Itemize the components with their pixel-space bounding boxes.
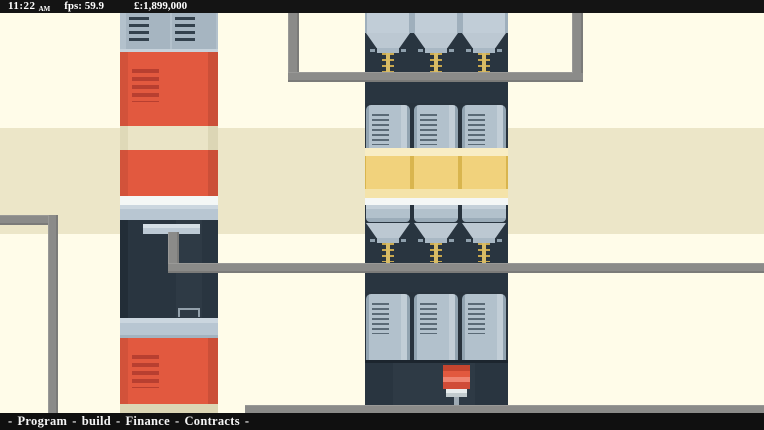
menu-separator: - bbox=[175, 414, 179, 429]
tank-steel-ring bbox=[120, 205, 218, 220]
injector-nozzle bbox=[414, 33, 458, 73]
fps-counter: fps: 59.9 bbox=[64, 0, 104, 13]
drill-collar bbox=[446, 389, 467, 397]
tank-white-ring bbox=[120, 196, 218, 205]
menu-item-finance[interactable]: Finance bbox=[126, 414, 170, 429]
vent-slats-icon bbox=[468, 303, 485, 334]
menu-item-program[interactable]: Program bbox=[17, 414, 67, 429]
tank-vent-slats-icon bbox=[132, 355, 159, 388]
housing-segment bbox=[415, 13, 457, 33]
menu-separator: - bbox=[8, 414, 12, 429]
red-tank-middle bbox=[120, 150, 218, 196]
injector-chamber-upper bbox=[365, 33, 508, 103]
injector-nozzle bbox=[462, 223, 506, 263]
injector-chamber-lower bbox=[365, 222, 508, 292]
injector-nozzle bbox=[366, 223, 410, 263]
tank-white-ring bbox=[365, 198, 508, 205]
cylinder bbox=[414, 105, 458, 148]
cylinder bbox=[462, 105, 506, 148]
vent-slats-icon bbox=[129, 17, 149, 44]
nozzle-head-icon bbox=[462, 223, 506, 238]
cylinder bbox=[462, 294, 506, 360]
nozzle-head-icon bbox=[366, 33, 410, 48]
machine-column-right[interactable] bbox=[365, 0, 508, 430]
fill-band-lowlight bbox=[365, 189, 508, 198]
chamber-shadow-edge bbox=[120, 220, 128, 318]
fill-band-highlight bbox=[365, 148, 508, 156]
drill-bit-icon bbox=[430, 53, 442, 72]
tank-steel-ring bbox=[120, 318, 218, 338]
yellow-fill-band bbox=[365, 148, 508, 198]
menu-separator: - bbox=[245, 414, 249, 429]
game-viewport: 11:22 AM fps: 59.9 £:1,899,000 - Program… bbox=[0, 0, 764, 430]
injector-nozzle bbox=[366, 33, 410, 73]
clock-ampm: AM bbox=[39, 3, 51, 16]
nozzle-head-icon bbox=[366, 223, 410, 238]
nozzle-head-icon bbox=[462, 33, 506, 48]
cylinder bbox=[366, 294, 410, 360]
cylinder bbox=[414, 294, 458, 360]
housing-segment bbox=[463, 13, 505, 33]
tank-base bbox=[120, 404, 218, 413]
injector-top-housing bbox=[365, 13, 508, 33]
cylinder-cap bbox=[414, 205, 458, 222]
hatch-handle-icon bbox=[178, 308, 200, 317]
menu-item-build[interactable]: build bbox=[82, 414, 111, 429]
cylinder-rack-upper bbox=[365, 103, 508, 148]
conveyor-pipe-top-right[interactable] bbox=[572, 13, 583, 73]
money-counter: £:1,899,000 bbox=[134, 0, 187, 13]
conveyor-pipe-left-vertical[interactable] bbox=[48, 215, 58, 413]
drill-bit-icon bbox=[382, 53, 394, 72]
vent-slats-icon bbox=[468, 114, 485, 145]
vent-slats-icon bbox=[372, 303, 389, 334]
housing-segment bbox=[367, 13, 409, 33]
hud-bar: 11:22 AM fps: 59.9 £:1,899,000 bbox=[0, 0, 764, 13]
nozzle-head-icon bbox=[414, 33, 458, 48]
vent-panel bbox=[172, 13, 216, 49]
clock-time: 11:22 bbox=[8, 0, 36, 13]
nozzle-head-icon bbox=[414, 223, 458, 238]
menu-bar: - Program - build - Finance - Contracts … bbox=[0, 413, 764, 430]
cylinder-rack-lower bbox=[365, 292, 508, 360]
machine-column-left[interactable] bbox=[120, 0, 218, 430]
cylinder bbox=[366, 105, 410, 148]
tank-khaki-band bbox=[120, 126, 218, 150]
red-tank-upper bbox=[120, 52, 218, 126]
conveyor-pipe-top-horizontal[interactable] bbox=[288, 72, 583, 82]
vent-panel bbox=[126, 13, 170, 49]
menu-separator: - bbox=[72, 414, 76, 429]
red-tank-lower bbox=[120, 338, 218, 404]
drill-bit-icon bbox=[478, 53, 490, 72]
drill-tool-icon bbox=[443, 365, 470, 389]
machine-top-vent-housing bbox=[120, 13, 218, 52]
menu-separator: - bbox=[116, 414, 120, 429]
cylinder-caps bbox=[365, 205, 508, 222]
vent-slats-icon bbox=[420, 303, 437, 334]
drill-bit-icon bbox=[478, 243, 490, 262]
vent-slats-icon bbox=[420, 114, 437, 145]
tank-vent-slats-icon bbox=[132, 69, 159, 102]
menu-item-contracts[interactable]: Contracts bbox=[184, 414, 239, 429]
cylinder-cap bbox=[462, 205, 506, 222]
injector-nozzle bbox=[462, 33, 506, 73]
conveyor-pipe-top-left[interactable] bbox=[288, 13, 299, 73]
injector-nozzle bbox=[414, 223, 458, 263]
drill-bit-icon bbox=[382, 243, 394, 262]
vent-slats-icon bbox=[372, 114, 389, 145]
drill-bit-icon bbox=[430, 243, 442, 262]
vent-slats-icon bbox=[175, 17, 195, 44]
conveyor-pipe-middle-horizontal[interactable] bbox=[168, 263, 764, 273]
drill-chamber bbox=[365, 363, 508, 405]
cylinder-cap bbox=[366, 205, 410, 222]
